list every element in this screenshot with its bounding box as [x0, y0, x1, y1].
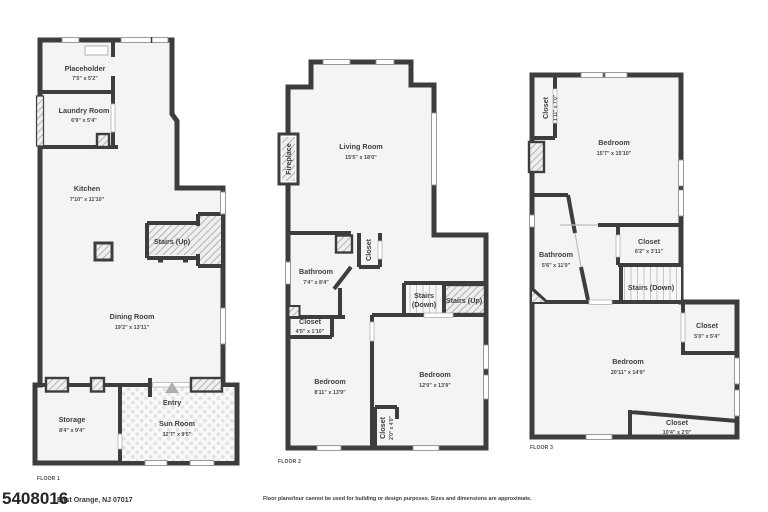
floor-2-plan: Living Room 15'5" x 18'0" Fireplace Bath…: [272, 52, 494, 468]
room-label-entry: Entry: [163, 398, 181, 407]
room-label-closet-mid: Closet: [638, 237, 661, 246]
room-dims-sunroom: 12'7" x 9'5": [163, 432, 192, 438]
room-dims-bedroom-bottom: 20'11" x 14'9": [611, 370, 646, 376]
room-dims-bedroom-right: 12'0" x 13'9": [419, 383, 451, 389]
room-label-stairs-down: Stairs: [414, 291, 434, 300]
room-label-closet-bottom: Closet: [666, 418, 689, 427]
floor-1-caption: FLOOR 1: [37, 476, 60, 482]
room-label-closet-top: Closet: [541, 96, 550, 119]
room-dims-living: 15'5" x 18'0": [345, 155, 377, 161]
room-label-stairs-down: Stairs (Down): [628, 283, 675, 292]
room-dims-bedroom-left: 8'11" x 13'9": [314, 390, 346, 396]
room-label-stairs-up: Stairs (Up): [446, 296, 483, 305]
room-dims-laundry: 6'9" x 5'4": [71, 118, 97, 124]
wall-chimney: [529, 142, 544, 172]
room-label-stairs-down-2: (Down): [412, 300, 437, 309]
room-label-placeholder: Placeholder: [65, 64, 106, 73]
room-dims-bathroom: 7'4" x 8'4": [303, 280, 329, 286]
room-label-bedroom-right: Bedroom: [419, 370, 451, 379]
room-label-living: Living Room: [339, 142, 383, 151]
room-label-fireplace: Fireplace: [284, 143, 293, 175]
room-label-laundry: Laundry Room: [59, 106, 110, 115]
room-label-bedroom-top: Bedroom: [598, 138, 630, 147]
floor-3-plan: Closet 1'11" x 7'0" Bedroom 15'7" x 15'1…: [524, 60, 744, 456]
placeholder-counter: [85, 46, 108, 55]
room-label-closet-bottom: Closet: [378, 416, 387, 439]
laundry-appliance: [97, 134, 109, 147]
room-dims-bathroom: 5'6" x 11'0": [542, 263, 571, 269]
floor-1-walls: [35, 40, 237, 463]
room-label-closet-right: Closet: [696, 321, 719, 330]
room-dims-closet-small: 4'5" x 1'10": [296, 329, 325, 335]
room-dims-storage: 8'4" x 9'4": [59, 428, 85, 434]
disclaimer-text: Floor plans/tour cannot be used for buil…: [263, 496, 532, 502]
floor-1-plan: Placeholder 7'5" x 5'2" Laundry Room 6'9…: [28, 28, 246, 486]
room-label-storage: Storage: [59, 415, 86, 424]
room-label-closet-hall: Closet: [364, 238, 373, 261]
room-label-closet-small: Closet: [299, 317, 322, 326]
wall-hatch: [37, 96, 44, 146]
room-dims-kitchen: 7'10" x 11'10": [70, 197, 105, 203]
room-dims-closet-mid: 6'2" x 3'11": [635, 249, 664, 255]
room-label-kitchen: Kitchen: [74, 184, 100, 193]
floor-2-walls: [279, 62, 486, 448]
room-label-bedroom-left: Bedroom: [314, 377, 346, 386]
room-label-sunroom: Sun Room: [159, 419, 195, 428]
room-dims-closet-bottom: 10'4" x 2'0": [663, 430, 692, 436]
room-label-stairs-up: Stairs (Up): [154, 237, 191, 246]
kitchen-chimney: [95, 243, 112, 260]
floor-2-caption: FLOOR 2: [278, 459, 301, 465]
floor-3-caption: FLOOR 3: [530, 445, 553, 451]
room-dims-bedroom-top: 15'7" x 15'10": [597, 151, 632, 157]
room-dims-closet-right: 5'0" x 5'4": [694, 334, 720, 340]
floor-plan-sheet: Placeholder 7'5" x 5'2" Laundry Room 6'9…: [0, 0, 768, 512]
property-address: East Orange, NJ 07017: [57, 497, 133, 504]
room-dims-dining: 19'2" x 13'11": [115, 325, 150, 331]
room-label-bathroom: Bathroom: [539, 250, 573, 259]
room-dims-closet-bottom: 2'0" x 4'0": [389, 415, 395, 439]
room-label-bathroom: Bathroom: [299, 267, 333, 276]
room-label-dining: Dining Room: [110, 312, 155, 321]
bathroom-fixture: [336, 236, 352, 253]
room-dims-placeholder: 7'5" x 5'2": [72, 76, 98, 82]
room-dims-closet-top: 1'11" x 7'0": [553, 94, 559, 121]
room-label-bedroom-bottom: Bedroom: [612, 357, 644, 366]
watermark-number: 5408016: [2, 489, 68, 509]
